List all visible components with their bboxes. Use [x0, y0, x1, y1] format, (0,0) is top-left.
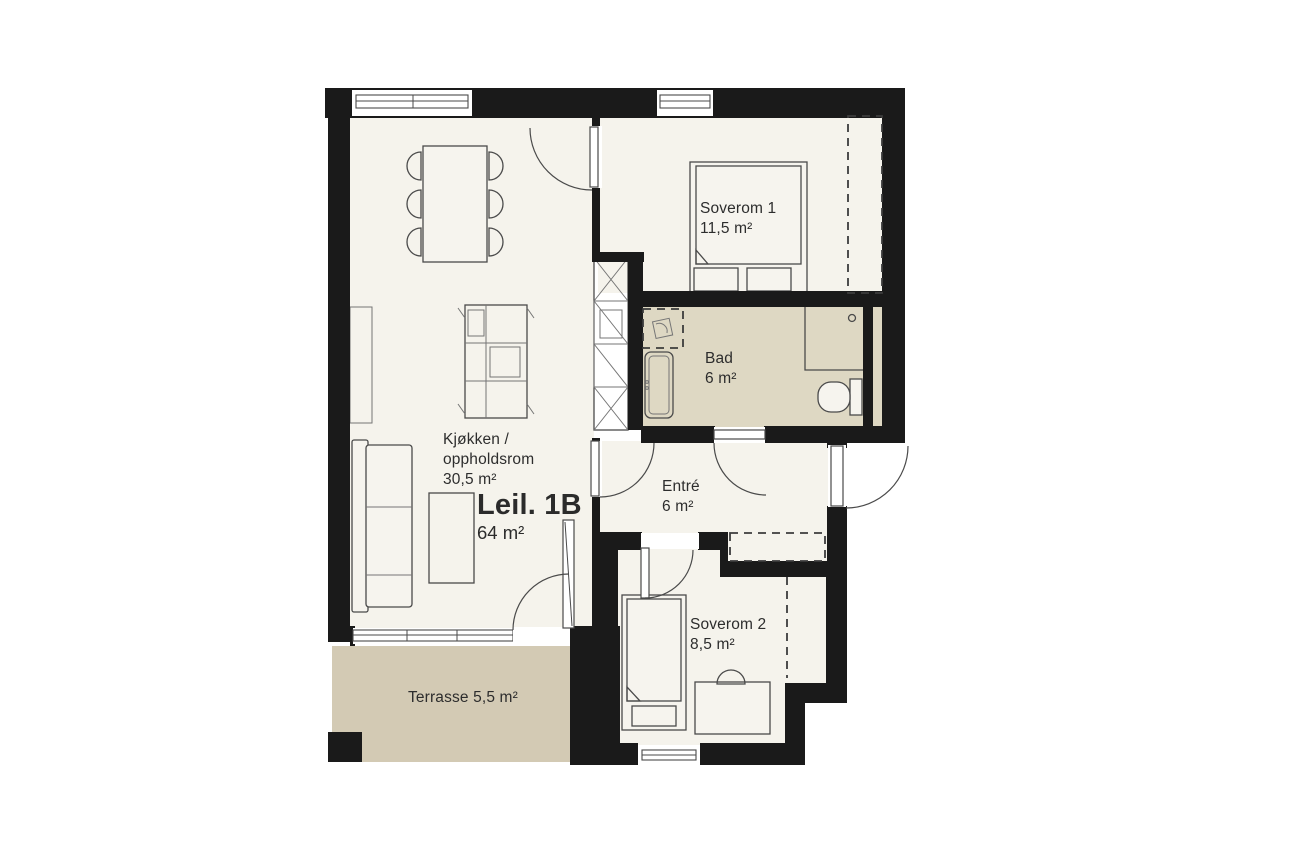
- door-leaf-bad: [714, 430, 765, 439]
- room-label-soverom1: Soverom 1 11,5 m²: [700, 199, 776, 239]
- wall-niche-stub: [720, 532, 728, 577]
- room-name: Soverom 1: [700, 199, 776, 219]
- door-opening-balcony: [513, 627, 570, 646]
- room-name: Terrasse 5,5 m²: [408, 688, 518, 708]
- room-area: 6 m²: [662, 497, 700, 517]
- room-label-soverom2: Soverom 2 8,5 m²: [690, 615, 766, 655]
- floor-plan-drawing: [0, 0, 1300, 866]
- toilet-bowl: [818, 382, 850, 412]
- door-leaf-entre: [591, 441, 599, 496]
- dining-table: [423, 146, 487, 262]
- wall-terrace-column: [328, 732, 362, 762]
- wall-living-soverom1: [592, 116, 600, 126]
- wall-entre-soverom2: [592, 532, 642, 550]
- wall-living-soverom1: [592, 188, 600, 258]
- room-label-kitchen: Kjøkken / oppholdsrom 30,5 m²: [443, 430, 534, 490]
- door-leaf-soverom2: [641, 548, 649, 598]
- wall-soverom2-step: [785, 683, 805, 765]
- room-label-bad: Bad 6 m²: [705, 349, 737, 389]
- room-area: 8,5 m²: [690, 635, 766, 655]
- desk: [695, 682, 770, 734]
- apartment-name: Leil. 1B: [477, 489, 582, 521]
- door-leaf-soverom1: [590, 127, 598, 187]
- room-area: 30,5 m²: [443, 470, 534, 490]
- wall-left: [328, 88, 350, 642]
- sofa-seat: [366, 445, 412, 607]
- floor-shaft: [873, 303, 883, 428]
- wall-entry: [827, 506, 847, 573]
- room-name: Kjøkken /: [443, 430, 534, 450]
- door-swing-entrance: [846, 446, 908, 508]
- room-name: oppholdsrom: [443, 450, 534, 470]
- wall-niche-bottom: [728, 561, 827, 577]
- wall-right: [882, 88, 905, 434]
- apartment-label: Leil. 1B 64 m²: [477, 489, 582, 544]
- wall-bad-entre: [764, 426, 905, 443]
- room-area: 6 m²: [705, 369, 737, 389]
- door-leaf-entrance: [831, 446, 843, 506]
- cabinet-shelf: [600, 310, 622, 338]
- room-area: 11,5 m²: [700, 219, 776, 239]
- floor-plan: Soverom 1 11,5 m² Bad 6 m² Entré 6 m² So…: [0, 0, 1300, 866]
- wall-soverom2-right: [826, 573, 847, 702]
- toilet-tank: [850, 379, 862, 415]
- door-opening-soverom2: [641, 533, 699, 549]
- cabinet-x: [594, 344, 628, 387]
- room-label-terrace: Terrasse 5,5 m²: [408, 688, 518, 708]
- apartment-area: 64 m²: [477, 522, 582, 544]
- wall-cabinet-back: [628, 258, 643, 430]
- room-name: Bad: [705, 349, 737, 369]
- room-name: Soverom 2: [690, 615, 766, 635]
- wall-shaft: [863, 303, 873, 428]
- room-label-entre: Entré 6 m²: [662, 477, 700, 517]
- room-name: Entré: [662, 477, 700, 497]
- wall-terrace-right: [570, 626, 620, 765]
- wall-bad-entre: [641, 426, 715, 443]
